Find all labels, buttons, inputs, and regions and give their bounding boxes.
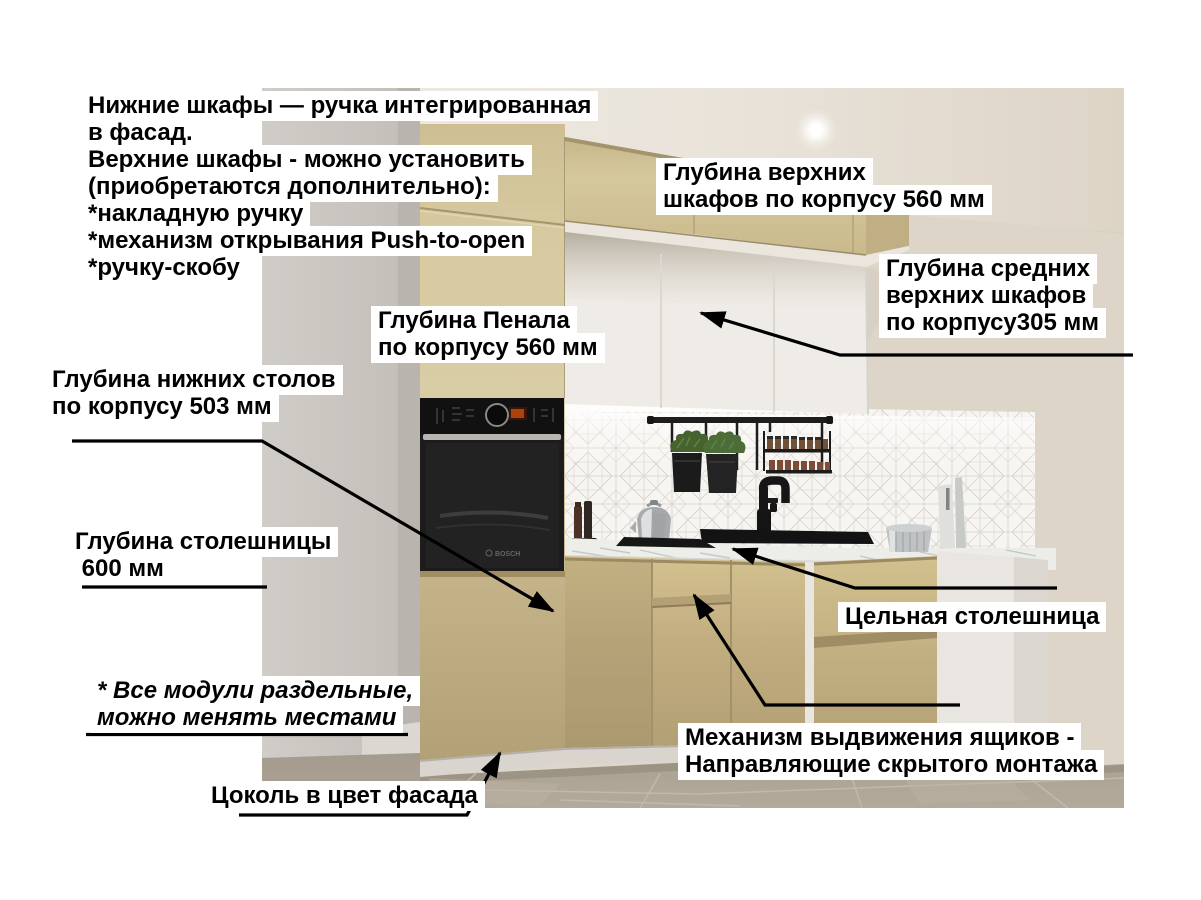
svg-text:BOSCH: BOSCH [495, 551, 520, 558]
